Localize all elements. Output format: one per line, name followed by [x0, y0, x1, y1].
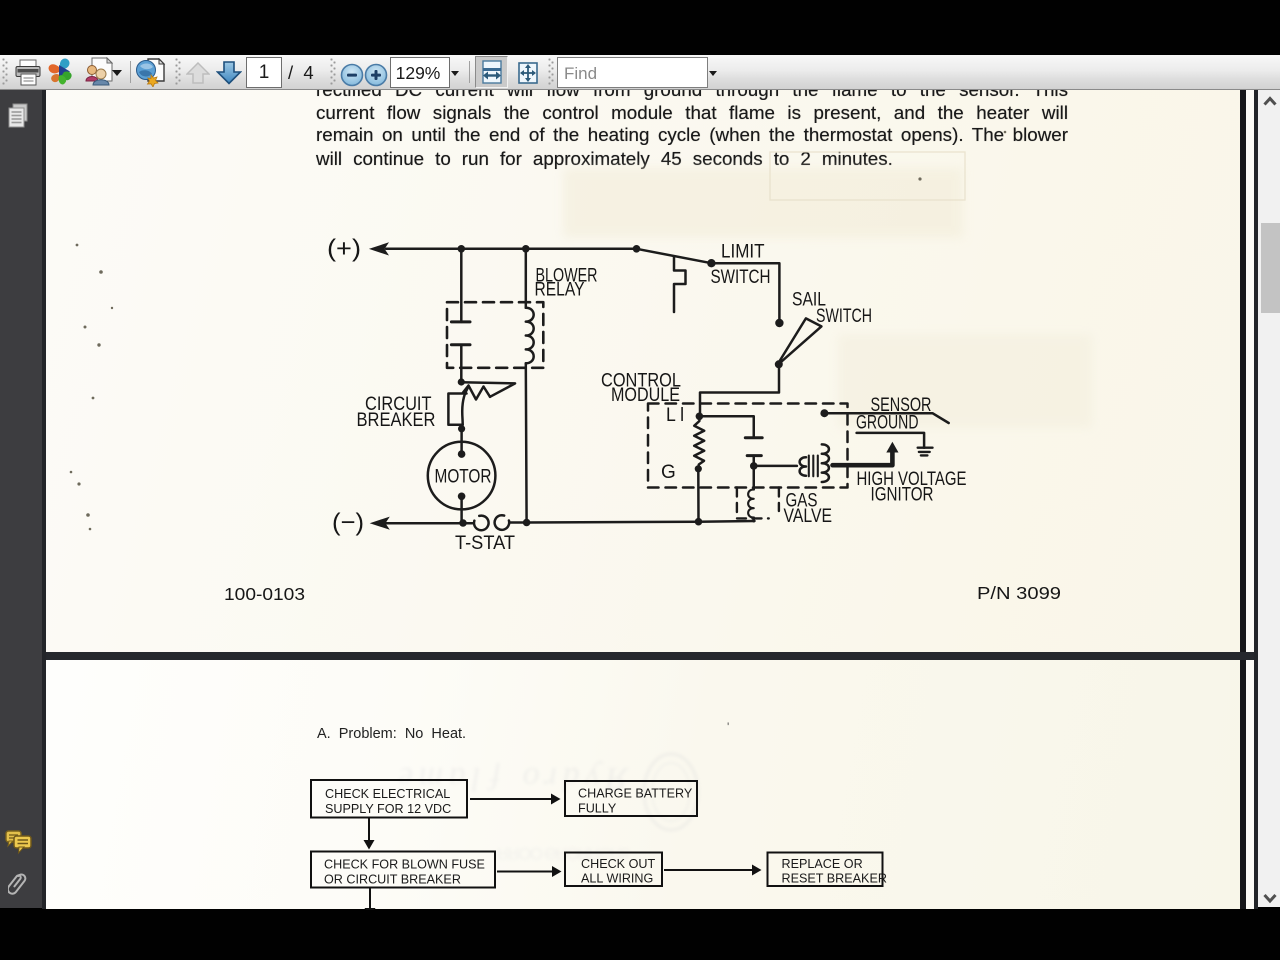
- svg-text:REPLACE OR: REPLACE OR: [782, 857, 863, 871]
- svg-text:IGNITOR: IGNITOR: [871, 485, 934, 506]
- svg-text:CHECK FOR BLOWN FUSE: CHECK FOR BLOWN FUSE: [324, 858, 485, 872]
- svg-text:L l: L l: [666, 405, 684, 426]
- svg-text:P/N 3099: P/N 3099: [977, 583, 1061, 603]
- svg-text:MOTOR: MOTOR: [435, 467, 492, 488]
- svg-text:SUPPLY FOR 12 VDC: SUPPLY FOR 12 VDC: [325, 802, 451, 816]
- svg-text:RELAY: RELAY: [535, 280, 585, 301]
- svg-text:(+): (+): [327, 235, 361, 263]
- svg-text:VALVE: VALVE: [784, 506, 833, 527]
- svg-text:SWITCH: SWITCH: [711, 267, 771, 288]
- svg-text:CHECK ELECTRICAL: CHECK ELECTRICAL: [325, 787, 450, 801]
- svg-text:MODULE: MODULE: [611, 385, 680, 406]
- svg-text:T-STAT: T-STAT: [455, 533, 515, 554]
- svg-text:(−): (−): [332, 509, 364, 537]
- svg-text:ALL WIRING: ALL WIRING: [581, 872, 653, 886]
- svg-text:GROUND: GROUND: [856, 413, 919, 434]
- svg-text:G: G: [661, 462, 676, 483]
- svg-text:': ': [727, 720, 729, 734]
- svg-text:BREAKER: BREAKER: [357, 410, 436, 431]
- svg-text:A. Problem: No Heat.: A. Problem: No Heat.: [317, 726, 466, 742]
- svg-text:RESET BREAKER: RESET BREAKER: [782, 872, 887, 886]
- svg-text:100-0103: 100-0103: [224, 584, 305, 604]
- svg-text:OR CIRCUIT BREAKER: OR CIRCUIT BREAKER: [324, 873, 461, 887]
- svg-text:FULLY: FULLY: [578, 802, 617, 816]
- svg-text:SWITCH: SWITCH: [816, 306, 872, 327]
- svg-text:CHECK OUT: CHECK OUT: [581, 857, 655, 871]
- svg-text:CHARGE BATTERY: CHARGE BATTERY: [578, 787, 693, 801]
- svg-text:LIMIT: LIMIT: [721, 242, 765, 263]
